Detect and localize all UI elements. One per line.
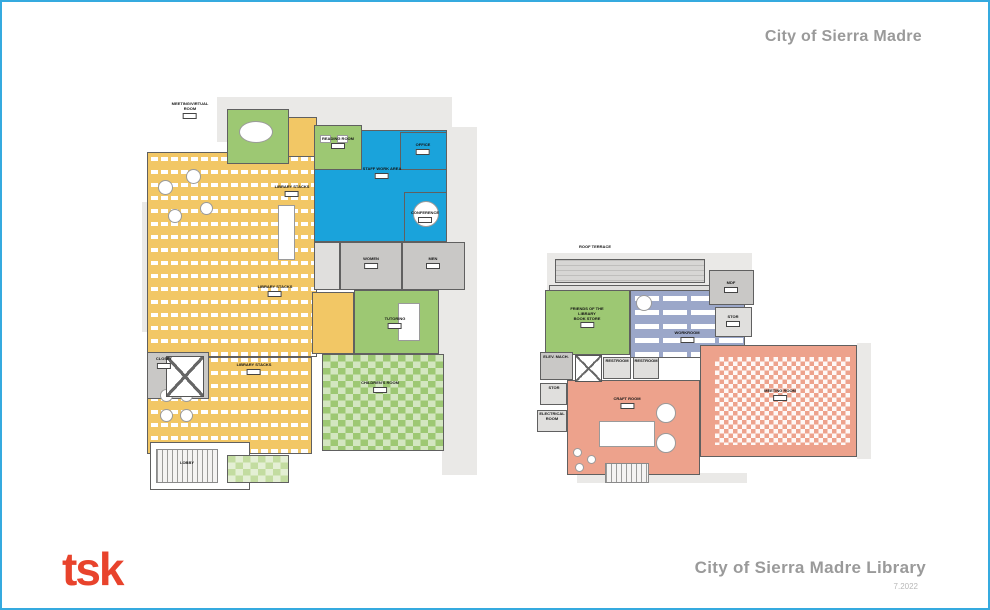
ellipse-furniture <box>186 169 201 184</box>
room-label: STAFF WORK AREA <box>363 167 402 179</box>
date-note: 7.2022 <box>894 582 918 591</box>
room-label: LIBRARY STACKS <box>258 285 293 297</box>
ellipse-furniture <box>575 463 584 472</box>
room-childrens-room <box>322 354 444 451</box>
ellipse-furniture <box>636 295 652 311</box>
rect-furniture <box>599 421 655 447</box>
room-label: MDF <box>724 281 738 293</box>
site-silhouette <box>442 357 477 475</box>
room-utility <box>314 242 340 290</box>
room-label: LIBRARY STACKS <box>237 363 272 375</box>
room-label: RESTROOM <box>605 359 628 364</box>
room-label: ROOF TERRACE <box>579 245 611 250</box>
ellipse-furniture <box>158 180 173 195</box>
ellipse-furniture <box>180 409 193 422</box>
room-label: MEN <box>426 257 440 269</box>
room-label: CHILDREN'S ROOM <box>361 381 399 393</box>
ellipse-furniture <box>656 433 676 453</box>
room-label: LIBRARY STACKS <box>275 185 310 197</box>
room-label: WORKROOM <box>674 331 699 343</box>
tsk-logo: tsk <box>62 546 122 592</box>
room-label: MEETING ROOM <box>764 389 796 401</box>
room-label: CRAFT ROOM <box>613 397 640 409</box>
room-label: LOBBY <box>180 461 194 466</box>
room-label: FRIENDS OF THELIBRARYBOOK STORE <box>570 307 603 328</box>
project-title: City of Sierra Madre Library <box>695 558 926 578</box>
room-mid-yellow <box>312 292 354 354</box>
room-label: OFFICE <box>416 143 431 155</box>
ellipse-furniture <box>239 121 273 143</box>
ellipse-furniture <box>573 448 582 457</box>
room-label: STOR <box>726 315 740 327</box>
ellipse-furniture <box>160 409 173 422</box>
room-label: CONFERENCE <box>411 211 439 223</box>
room-label: ELECTRICALROOM <box>539 412 564 422</box>
ellipse-furniture <box>200 202 213 215</box>
floor-plan-level-1: MEETING/VIRTUALROOMREADING ROOMSTAFF WOR… <box>142 97 477 492</box>
site-silhouette <box>857 343 871 459</box>
room-label: TUTORING <box>385 317 406 329</box>
presentation-sheet: City of Sierra Madre MEETING/VIRTUALROOM… <box>0 0 990 610</box>
ellipse-furniture <box>587 455 596 464</box>
room-label: CLOSET <box>156 357 172 369</box>
stairs-furniture <box>605 463 649 483</box>
room-label: WOMEN <box>363 257 379 269</box>
client-title: City of Sierra Madre <box>765 28 922 46</box>
stairs-furniture <box>156 449 218 483</box>
room-patio <box>227 455 289 483</box>
room-label: RESTROOM <box>634 359 657 364</box>
floor-plan-level-2: ROOF TERRACEFRIENDS OF THELIBRARYBOOK ST… <box>537 245 922 485</box>
xbox-furniture <box>575 355 602 382</box>
ellipse-furniture <box>656 403 676 423</box>
rect-furniture <box>278 205 295 260</box>
room-roof-terrace <box>555 259 705 283</box>
room-meeting-chairs <box>715 357 850 445</box>
room-label: ELEV. MACH. <box>543 355 568 360</box>
room-label: READING ROOM <box>322 137 354 149</box>
ellipse-furniture <box>168 209 182 223</box>
room-label: STOR <box>548 386 559 391</box>
room-label: MEETING/VIRTUALROOM <box>172 102 209 119</box>
